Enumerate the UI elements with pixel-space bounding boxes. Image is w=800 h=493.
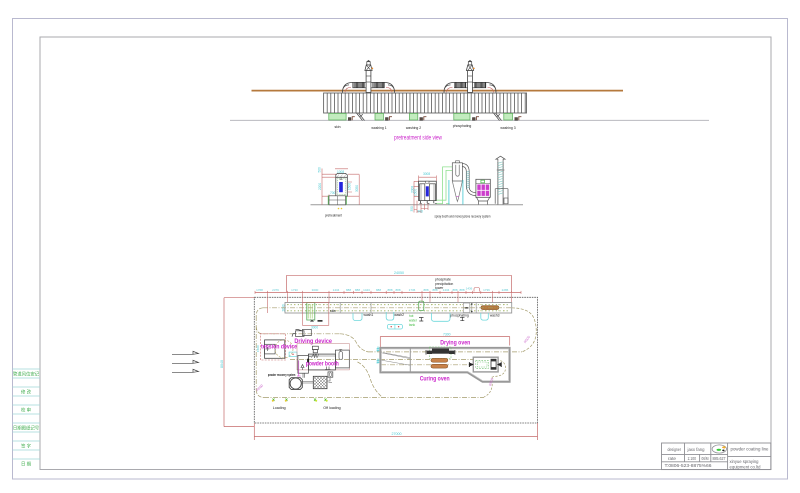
svg-text:T:0806-523-8875%66: T:0806-523-8875%66 bbox=[665, 463, 713, 468]
svg-text:wash3: wash3 bbox=[490, 314, 500, 318]
svg-text:8040: 8040 bbox=[220, 360, 224, 368]
svg-text:rate: rate bbox=[668, 456, 677, 461]
svg-text:06/M: 06/M bbox=[702, 456, 709, 461]
svg-text:3000: 3000 bbox=[312, 288, 319, 292]
svg-text:designer: designer bbox=[668, 447, 682, 452]
svg-text:pretreatment side view: pretreatment side view bbox=[394, 136, 443, 142]
svg-text:888: 888 bbox=[346, 288, 351, 292]
svg-text:phosphating: phosphating bbox=[453, 124, 472, 128]
svg-text:1768: 1768 bbox=[256, 288, 263, 292]
svg-text:hot: hot bbox=[409, 314, 414, 318]
svg-text:1500: 1500 bbox=[256, 345, 260, 352]
svg-text:修 改: 修 改 bbox=[21, 389, 32, 396]
svg-text:washing 3: washing 3 bbox=[500, 126, 515, 130]
svg-text:885.627: 885.627 bbox=[713, 456, 727, 461]
svg-text:tank: tank bbox=[409, 323, 416, 327]
svg-text:pretreatment: pretreatment bbox=[325, 213, 343, 218]
svg-text:1736: 1736 bbox=[483, 288, 490, 292]
svg-text:1500: 1500 bbox=[348, 183, 352, 190]
svg-text:water: water bbox=[409, 319, 418, 323]
svg-text:powder booth: powder booth bbox=[306, 360, 339, 367]
svg-text:888: 888 bbox=[387, 288, 392, 292]
svg-text:888: 888 bbox=[395, 288, 400, 292]
svg-text:1500: 1500 bbox=[414, 189, 418, 196]
svg-text:7300: 7300 bbox=[443, 333, 451, 337]
svg-text:888: 888 bbox=[376, 288, 381, 292]
svg-text:1434: 1434 bbox=[443, 288, 450, 292]
svg-text:2379: 2379 bbox=[272, 288, 279, 292]
svg-text:888: 888 bbox=[355, 288, 360, 292]
svg-text:xinyue spraying: xinyue spraying bbox=[730, 459, 759, 464]
svg-text:Loading: Loading bbox=[273, 406, 286, 410]
svg-text:wash1: wash1 bbox=[364, 313, 374, 317]
svg-text:2286: 2286 bbox=[502, 288, 509, 292]
svg-text:1434: 1434 bbox=[333, 288, 340, 292]
svg-text:1436: 1436 bbox=[466, 286, 473, 290]
svg-text:powder recovery system: powder recovery system bbox=[268, 373, 296, 377]
svg-text:skin: skin bbox=[334, 125, 340, 129]
svg-text:wash2: wash2 bbox=[394, 313, 404, 317]
svg-text:washing 2: washing 2 bbox=[406, 126, 421, 130]
svg-text:washing 1: washing 1 bbox=[371, 126, 386, 130]
svg-text:skin: skin bbox=[330, 309, 336, 313]
svg-text:500: 500 bbox=[318, 167, 322, 173]
svg-text:tower: tower bbox=[435, 286, 444, 290]
svg-text:3000: 3000 bbox=[311, 326, 318, 330]
svg-text:Driving device: Driving device bbox=[294, 338, 332, 345]
svg-text:Curing oven: Curing oven bbox=[420, 376, 450, 383]
svg-text:签 字: 签 字 bbox=[21, 443, 32, 449]
svg-text:350: 350 bbox=[410, 206, 414, 212]
svg-text:24050: 24050 bbox=[394, 271, 404, 275]
svg-text:日期图纸记号: 日期图纸记号 bbox=[13, 425, 40, 432]
svg-text:888: 888 bbox=[423, 288, 428, 292]
svg-text:spray booth and monocyclone re: spray booth and monocyclone recovery sys… bbox=[435, 215, 491, 219]
svg-text:888: 888 bbox=[459, 288, 464, 292]
svg-text:tension device: tension device bbox=[261, 343, 297, 350]
svg-text:2200: 2200 bbox=[318, 183, 322, 190]
svg-text:1730: 1730 bbox=[291, 288, 298, 292]
svg-text:1443: 1443 bbox=[363, 288, 370, 292]
svg-text:phosphating: phosphating bbox=[450, 313, 469, 317]
svg-text:Drying oven: Drying oven bbox=[440, 340, 470, 347]
svg-text:equipment co.ltd: equipment co.ltd bbox=[730, 465, 761, 470]
svg-text:27000: 27000 bbox=[392, 432, 402, 436]
svg-text:jaxx fang: jaxx fang bbox=[686, 447, 705, 452]
svg-text:Off loading: Off loading bbox=[323, 406, 340, 410]
svg-text:908: 908 bbox=[418, 210, 424, 214]
svg-text:3050: 3050 bbox=[355, 185, 359, 192]
svg-text:powder coating line: powder coating line bbox=[731, 446, 769, 451]
svg-text:1:100: 1:100 bbox=[688, 456, 697, 461]
svg-text:3008: 3008 bbox=[423, 172, 430, 176]
svg-text:1736: 1736 bbox=[409, 288, 416, 292]
svg-text:700: 700 bbox=[330, 191, 336, 195]
svg-text:管道风位安记: 管道风位安记 bbox=[13, 371, 40, 378]
svg-text:校 审: 校 审 bbox=[21, 407, 32, 414]
svg-text:888: 888 bbox=[452, 288, 457, 292]
